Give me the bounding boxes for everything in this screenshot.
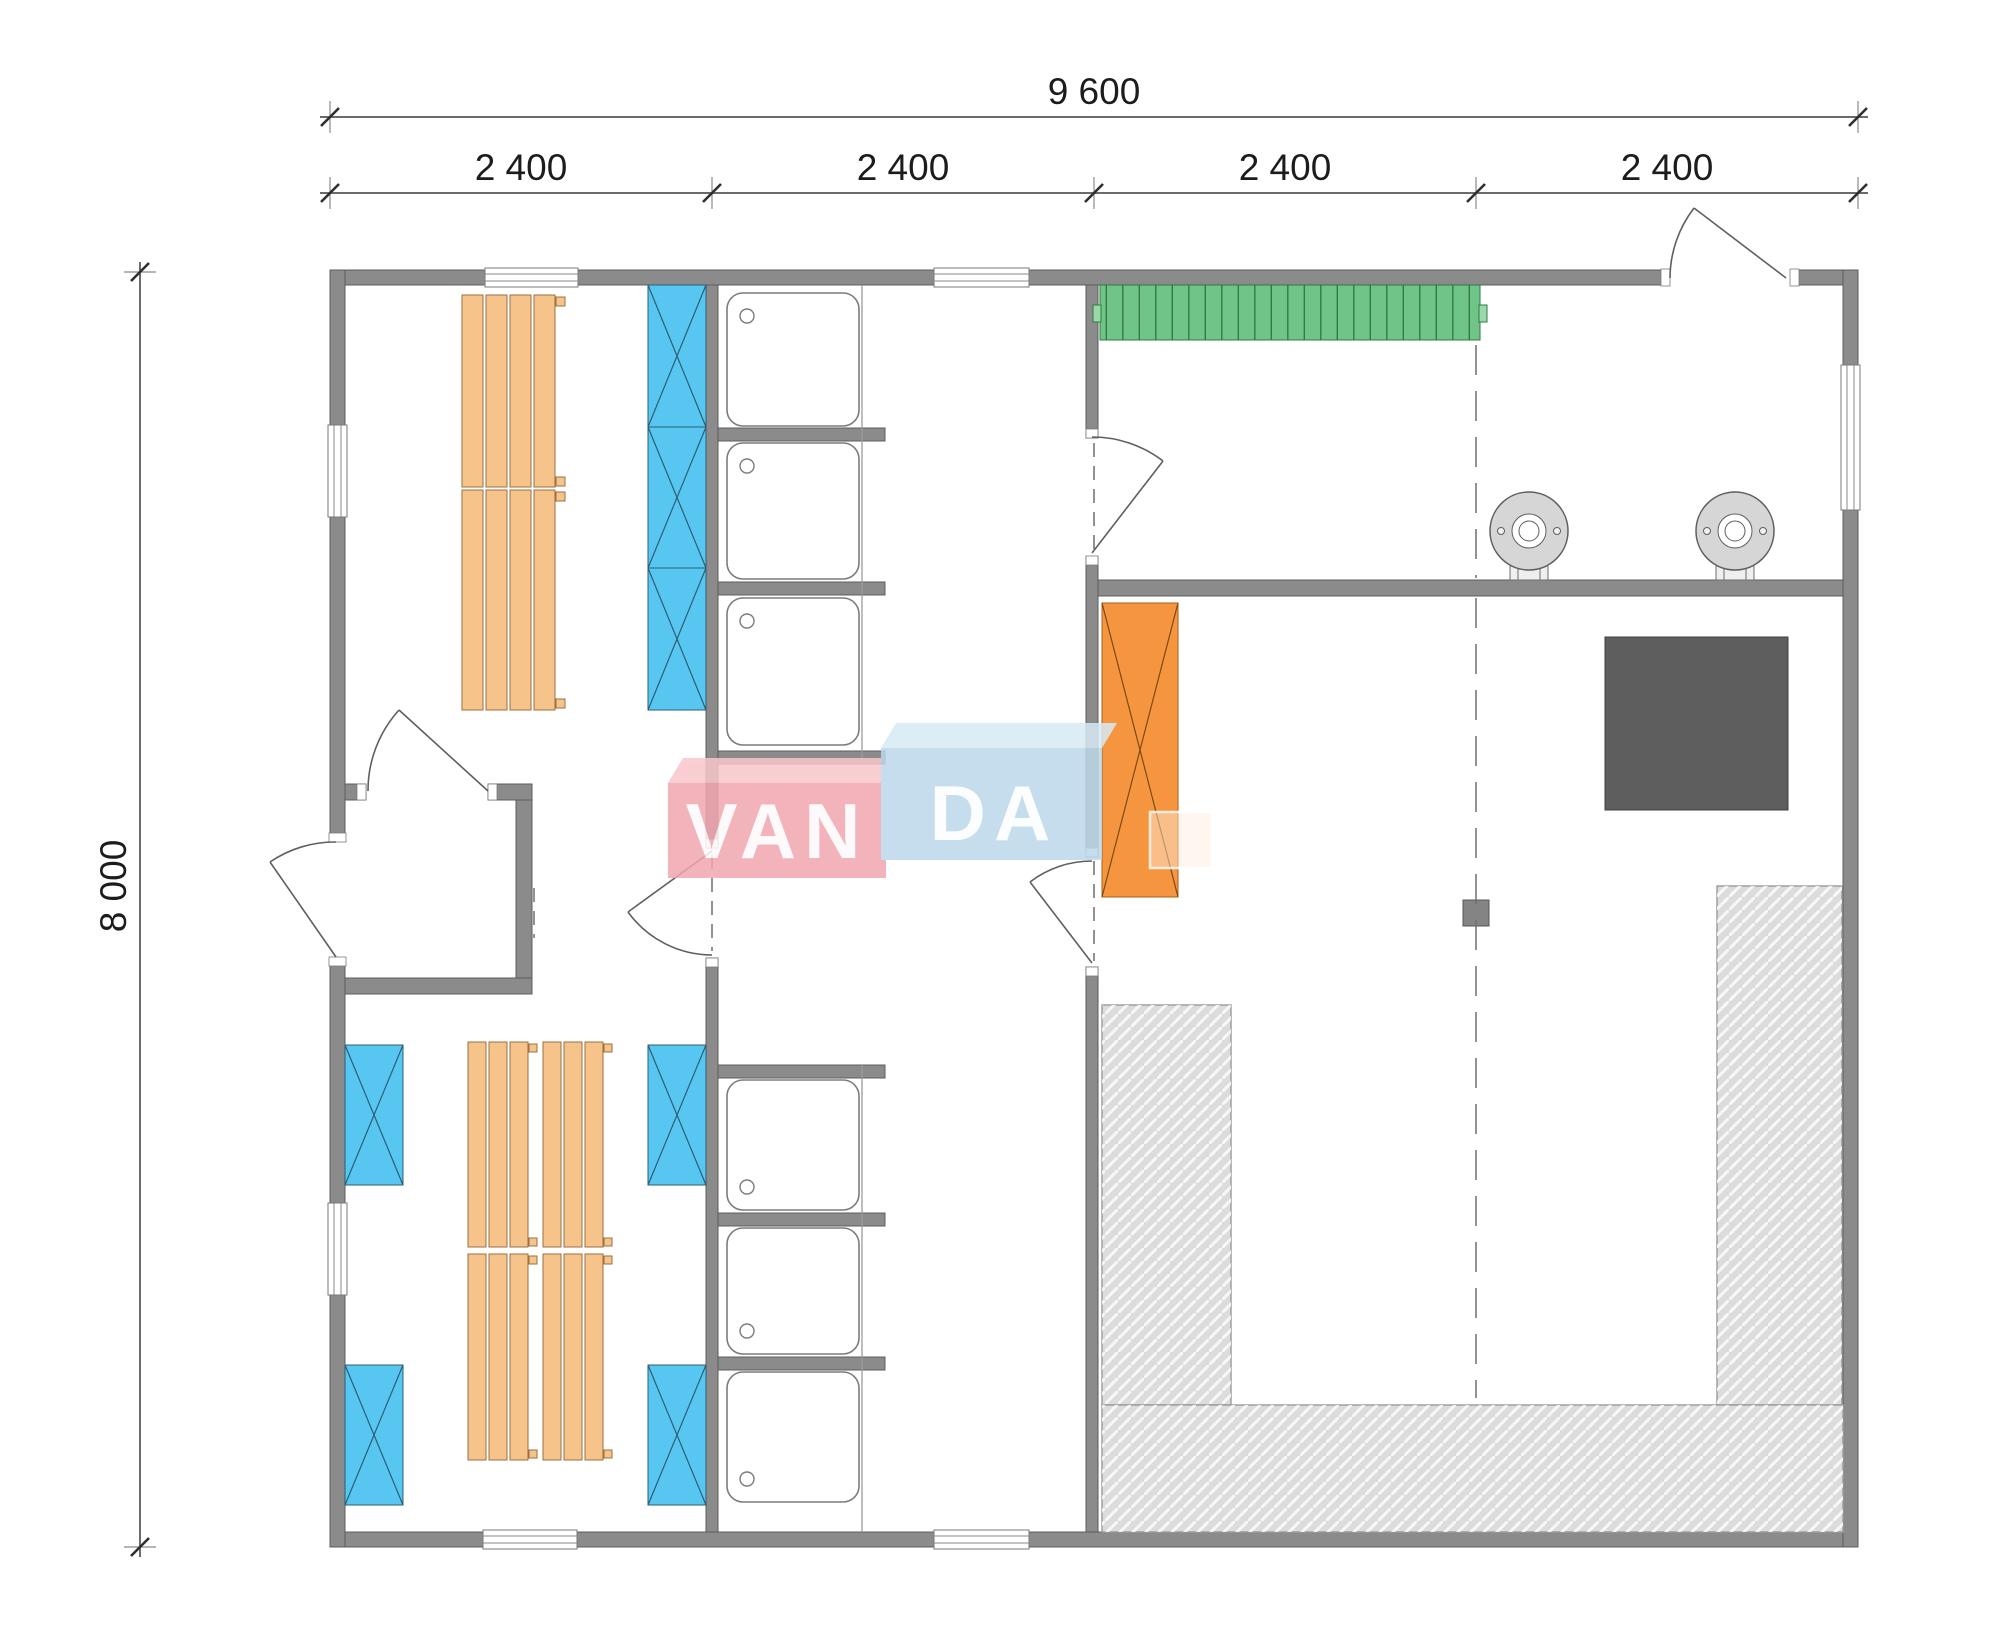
bench-tab [529, 1044, 537, 1052]
sauna-bottom-benches [468, 1042, 612, 1460]
door-swing-arc [1670, 208, 1694, 278]
door-leaf [270, 862, 336, 957]
drain-icon [740, 614, 754, 628]
fixture-center [1725, 521, 1745, 541]
deck-strip-left [1102, 1005, 1231, 1405]
fixture-screw [1554, 528, 1561, 535]
bench-plank [543, 1042, 561, 1247]
door-jamb [706, 958, 718, 967]
dimension-top-modules: 2 400 2 400 2 400 2 400 [320, 147, 1868, 209]
dim-label-total-width: 9 600 [1048, 71, 1141, 112]
dark-stove-table [1605, 637, 1788, 810]
bench-plank [543, 1254, 561, 1460]
vent-unit [648, 285, 706, 427]
door-swing-arc [1030, 861, 1092, 882]
deck-strip-bottom [1102, 1405, 1843, 1532]
dim-label-total-height: 8 000 [93, 840, 134, 933]
dim-label-module-2: 2 400 [857, 147, 950, 188]
shower-partition [718, 1213, 885, 1226]
door-opening [1670, 269, 1790, 286]
bench-plank [510, 490, 531, 710]
round-fixture-1 [1490, 492, 1568, 580]
door-jamb [1661, 269, 1670, 286]
dimension-top-overall: 9 600 [320, 71, 1868, 133]
bench-plank [585, 1042, 603, 1247]
door-leaf [1694, 208, 1786, 278]
wall-hall-divider [1098, 580, 1843, 596]
bench-tab [529, 1238, 537, 1246]
bench-tab [556, 477, 565, 486]
vent-unit [345, 1365, 403, 1505]
bench-plank [510, 295, 531, 487]
wall-sauna-shower-lower [706, 958, 718, 1532]
bench-plank [534, 490, 555, 710]
door-opening [329, 841, 346, 958]
door-vestibule-sauna [357, 710, 497, 800]
watermark-pink-top-face [668, 758, 901, 783]
bench-plank [585, 1254, 603, 1460]
dimension-left-overall: 8 000 [93, 262, 156, 1557]
door-entry-top-right [1661, 208, 1799, 286]
drain-icon [740, 309, 754, 323]
bench-tab [604, 1044, 612, 1052]
sauna-top-vent-column [648, 285, 706, 710]
fixture-center [1519, 521, 1539, 541]
bench-plank [489, 1042, 507, 1247]
door-jamb [329, 833, 346, 842]
door-swing-arc [628, 912, 712, 955]
bench-plank [564, 1042, 582, 1247]
bench-tab [604, 1256, 612, 1264]
fixture-screw [1498, 528, 1505, 535]
green-bench-tab [1093, 305, 1101, 322]
watermark-text-left: VAN [686, 787, 869, 875]
bench-plank [468, 1042, 486, 1247]
shower-stalls-bottom [727, 1065, 862, 1532]
bench-plank [462, 490, 483, 710]
door-shower-hall-lower [1030, 848, 1098, 976]
fixture-screw [1704, 528, 1711, 535]
shower-partition [718, 582, 885, 595]
shower-partition [718, 1357, 885, 1370]
deck-strip-right [1717, 886, 1842, 1405]
drain-icon [740, 1472, 754, 1486]
bench-tab [556, 297, 565, 306]
green-bench-tab [1479, 305, 1487, 322]
vent-unit [345, 1045, 403, 1185]
window-top-shower [934, 268, 1029, 287]
vent-unit [648, 568, 706, 710]
shower-partition [718, 1065, 885, 1078]
bench-plank [468, 1254, 486, 1460]
watermark-text-right: DA [930, 769, 1059, 857]
green-slatted-bench [1093, 285, 1487, 340]
bench-tab [556, 492, 565, 501]
door-jamb [488, 784, 497, 800]
fixture-screw [1760, 528, 1767, 535]
wall-left-upper [330, 270, 345, 841]
bench-plank [489, 1254, 507, 1460]
vent-unit [648, 1365, 706, 1505]
drain-icon [740, 459, 754, 473]
wall-shower-hall-bottom [1086, 967, 1098, 1532]
sauna-top-benches [462, 295, 565, 710]
floor-plan-page: 9 600 2 400 2 400 2 400 2 400 8 000 [0, 0, 2000, 1631]
drain-icon [740, 1324, 754, 1338]
door-leaf [1030, 882, 1092, 963]
floor-plan-drawing: 9 600 2 400 2 400 2 400 2 400 8 000 [0, 0, 2000, 1631]
vent-unit [648, 1045, 706, 1185]
door-swing-arc [1092, 437, 1163, 461]
door-shower-hall-upper [1086, 429, 1163, 565]
wall-vestibule-right [516, 800, 532, 978]
bench-plank [486, 295, 507, 487]
window-right [1841, 365, 1860, 510]
bench-tab [604, 1238, 612, 1246]
dim-label-module-1: 2 400 [475, 147, 568, 188]
bench-tab [556, 699, 565, 708]
door-jamb [329, 957, 346, 966]
watermark-cube [1150, 812, 1212, 868]
bench-plank [486, 490, 507, 710]
bench-plank [510, 1254, 528, 1460]
bench-plank [534, 295, 555, 487]
watermark-blue-top-face [881, 723, 1117, 748]
dim-label-module-4: 2 400 [1621, 147, 1714, 188]
door-swing-arc [368, 710, 399, 791]
bench-tab [604, 1450, 612, 1458]
green-bench-slats [1100, 285, 1480, 340]
door-leaf [399, 710, 488, 791]
bench-tab [529, 1256, 537, 1264]
window-top-sauna [485, 268, 578, 287]
window-bottom-sauna [483, 1530, 577, 1549]
door-jamb [1086, 967, 1098, 976]
door-entry-left [270, 833, 346, 966]
bench-tab [529, 1450, 537, 1458]
bench-plank [510, 1042, 528, 1247]
door-swing-arc [270, 842, 336, 862]
window-bottom-shower [934, 1530, 1029, 1549]
door-jamb [1086, 556, 1098, 565]
bench-plank [564, 1254, 582, 1460]
window-left-upper [328, 425, 347, 517]
bench-plank [462, 295, 483, 487]
vent-unit [648, 427, 706, 568]
door-jamb [1790, 269, 1799, 286]
wall-vestibule-bottom [345, 978, 532, 994]
door-jamb [357, 784, 366, 800]
deck-areas [1102, 886, 1843, 1532]
window-left-lower [328, 1203, 347, 1295]
shower-partition [718, 428, 885, 441]
drain-icon [740, 1180, 754, 1194]
door-leaf [1092, 461, 1163, 553]
dim-label-module-3: 2 400 [1239, 147, 1332, 188]
round-fixture-2 [1696, 492, 1774, 580]
shower-stalls-top [727, 285, 862, 764]
